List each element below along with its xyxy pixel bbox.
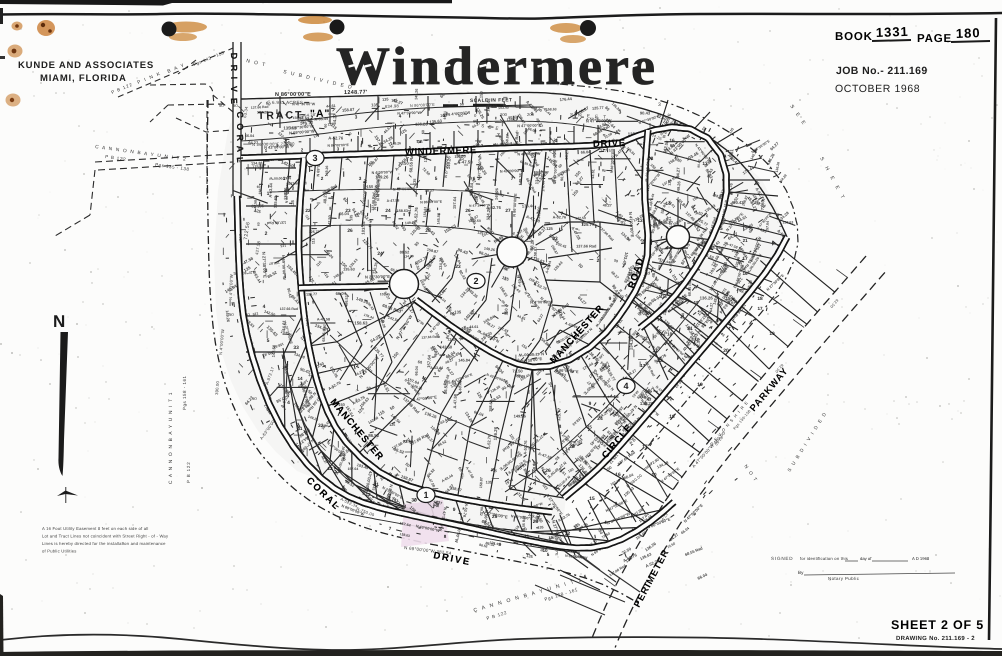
svg-text:125.77: 125.77 <box>306 292 317 296</box>
svg-text:66.04: 66.04 <box>336 291 347 296</box>
svg-text:4: 4 <box>623 381 628 391</box>
svg-text:KUNDE AND ASSOCIATES: KUNDE AND ASSOCIATES <box>18 60 154 71</box>
svg-text:6: 6 <box>339 516 342 521</box>
svg-text:16: 16 <box>615 472 621 478</box>
svg-text:50: 50 <box>219 103 224 108</box>
svg-text:Pgs 158 - 161: Pgs 158 - 161 <box>182 375 187 410</box>
svg-text:By: By <box>798 570 804 575</box>
svg-text:8: 8 <box>444 534 447 539</box>
svg-text:N 86°00'00"E: N 86°00'00"E <box>275 92 311 98</box>
svg-text:V: V <box>229 86 239 92</box>
svg-text:N 43°00'00"W: N 43°00'00"W <box>264 144 289 150</box>
svg-text:18: 18 <box>669 414 675 420</box>
svg-text:3: 3 <box>312 153 317 163</box>
svg-text:17: 17 <box>757 306 763 311</box>
svg-text:of Public Utilities: of Public Utilities <box>42 549 77 554</box>
svg-text:1248.77': 1248.77' <box>344 90 368 96</box>
svg-text:3: 3 <box>658 102 661 108</box>
svg-text:A D 1968: A D 1968 <box>912 556 930 561</box>
svg-text:A 16 Foot Utility Easement: A 16 Foot Utility Easement 8 feet on eac… <box>42 526 149 531</box>
svg-text:N 86°00'00"E: N 86°00'00"E <box>327 143 349 148</box>
svg-text:2: 2 <box>473 276 478 286</box>
svg-text:OCTOBER 1968: OCTOBER 1968 <box>835 83 920 95</box>
svg-text:N 27°30'00"E: N 27°30'00"E <box>365 274 390 280</box>
svg-text:JOB No.- 211.169: JOB No.- 211.169 <box>836 65 928 77</box>
svg-text:SHEET 2 OF 5: SHEET 2 OF 5 <box>891 618 984 632</box>
svg-text:N 43°00'00"W: N 43°00'00"W <box>517 152 541 157</box>
svg-text:158.63: 158.63 <box>454 154 465 159</box>
svg-text:180: 180 <box>956 25 981 41</box>
svg-text:day of: day of <box>860 556 872 561</box>
svg-text:DRIVE: DRIVE <box>593 138 626 150</box>
svg-text:Lines is hereby directed f: Lines is hereby directed for the install… <box>42 541 166 546</box>
svg-text:C A N N O N B A Y U N I T: C A N N O N B A Y U N I T 1 <box>168 391 174 484</box>
svg-text:DRAWING No. 211.169 - 2: DRAWING No. 211.169 - 2 <box>896 635 975 642</box>
svg-text:N: N <box>53 312 65 331</box>
svg-text:1: 1 <box>423 490 428 500</box>
svg-text:for identification on this: for identification on this <box>800 556 848 561</box>
svg-text:7: 7 <box>389 526 392 531</box>
svg-text:Windermere: Windermere <box>336 36 658 96</box>
svg-text:66.04: 66.04 <box>581 150 592 154</box>
svg-text:15: 15 <box>589 496 595 502</box>
svg-text:149.26: 149.26 <box>391 141 402 145</box>
svg-text:Notary Public: Notary Public <box>828 576 860 581</box>
svg-text:P B 122: P B 122 <box>186 461 191 483</box>
svg-text:Lot and Tract Lines not c: Lot and Tract Lines not coincident with … <box>42 534 169 539</box>
svg-text:MIAMI, FLORIDA: MIAMI, FLORIDA <box>40 73 127 84</box>
svg-text:1331: 1331 <box>876 24 909 40</box>
svg-text:R: R <box>229 64 239 71</box>
svg-text:N 69°00'00"W: N 69°00'00"W <box>281 255 287 280</box>
svg-text:BOOK: BOOK <box>835 31 873 43</box>
svg-text:64.27: 64.27 <box>238 233 243 243</box>
svg-text:PAGE: PAGE <box>917 33 952 45</box>
svg-text:WINDERMERE: WINDERMERE <box>405 145 477 158</box>
svg-text:6: 6 <box>584 574 587 579</box>
svg-text:18: 18 <box>757 296 763 302</box>
svg-text:SIGNED: SIGNED <box>771 556 793 561</box>
svg-text:12: 12 <box>565 531 571 537</box>
svg-text:I: I <box>229 76 239 79</box>
svg-text:E: E <box>229 98 239 104</box>
svg-text:O: O <box>235 123 246 131</box>
svg-text:19: 19 <box>769 331 775 337</box>
svg-text:D: D <box>229 52 239 59</box>
svg-text:20: 20 <box>723 348 729 354</box>
